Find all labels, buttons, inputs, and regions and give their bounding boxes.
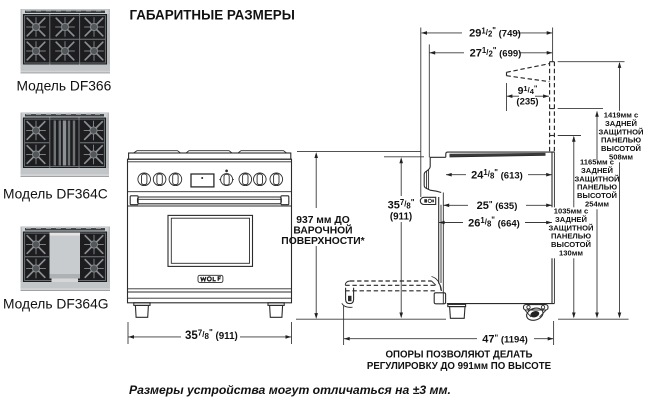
svg-text:261/8" (664): 261/8" (664) [468, 216, 520, 230]
svg-text:254мм: 254мм [585, 200, 609, 209]
svg-text:241/8" (613): 241/8" (613) [471, 168, 523, 182]
svg-text:Модель DF364C: Модель DF364C [3, 187, 108, 202]
svg-text:Размеры устройства могут отлич: Размеры устройства могут отличаться на ±… [129, 383, 451, 397]
svg-text:ГАБАРИТНЫЕ РАЗМЕРЫ: ГАБАРИТНЫЕ РАЗМЕРЫ [130, 8, 295, 23]
svg-text:47" (1194): 47" (1194) [482, 333, 528, 345]
svg-text:(235): (235) [516, 97, 538, 108]
svg-text:271/2" (699): 271/2" (699) [470, 46, 522, 60]
svg-text:РЕГУЛИРОВКУ ДО 991мм ПО ВЫСОТЕ: РЕГУЛИРОВКУ ДО 991мм ПО ВЫСОТЕ [367, 361, 552, 372]
svg-text:Модель DF366: Модель DF366 [17, 79, 112, 94]
svg-text:25" (635): 25" (635) [477, 200, 518, 212]
svg-text:91/4": 91/4" [518, 84, 538, 97]
svg-text:357/8" (911): 357/8" (911) [185, 328, 238, 342]
svg-text:130мм: 130мм [559, 249, 583, 258]
svg-text:291/2" (749): 291/2" (749) [469, 26, 521, 40]
svg-text:(911): (911) [390, 212, 412, 223]
svg-text:ПОВЕРХНОСТИ*: ПОВЕРХНОСТИ* [281, 236, 364, 247]
svg-text:Модель DF364G: Модель DF364G [3, 297, 109, 312]
svg-text:937 мм ДО: 937 мм ДО [296, 215, 349, 226]
svg-text:ВАРОЧНОЙ: ВАРОЧНОЙ [293, 223, 352, 236]
svg-text:357/8": 357/8" [388, 198, 415, 212]
svg-text:ОПОРЫ ПОЗВОЛЯЮТ ДЕЛАТЬ: ОПОРЫ ПОЗВОЛЯЮТ ДЕЛАТЬ [386, 350, 533, 361]
